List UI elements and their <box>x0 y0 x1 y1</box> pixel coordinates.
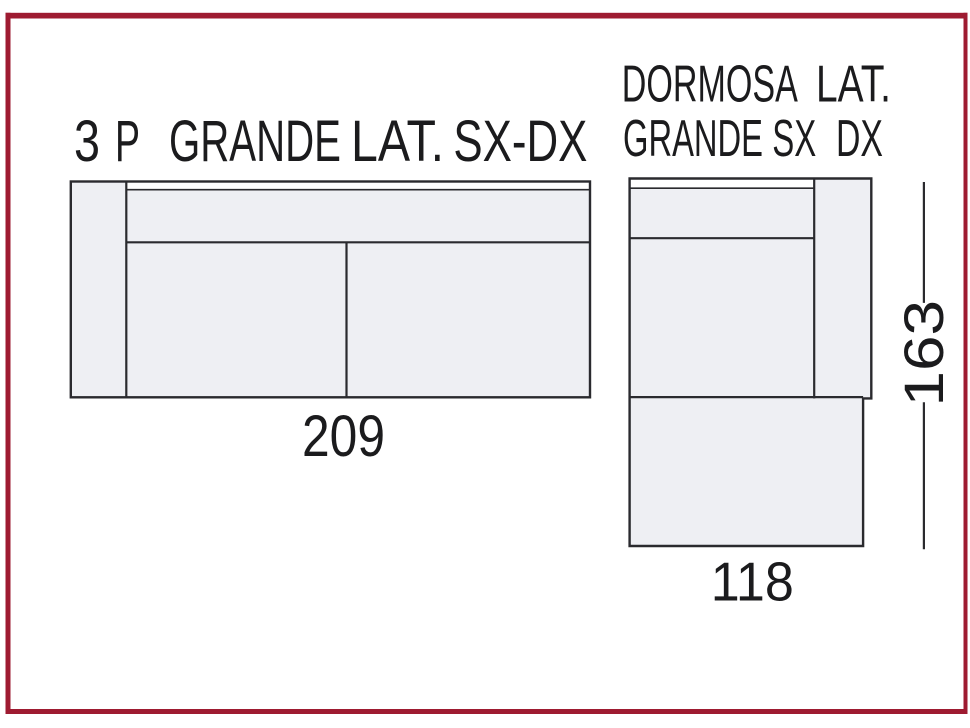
svg-text:GRANDE: GRANDE <box>169 109 341 174</box>
svg-text:118: 118 <box>711 551 794 613</box>
svg-text:SX: SX <box>772 109 816 167</box>
svg-text:163: 163 <box>892 300 955 407</box>
svg-text:LAT.: LAT. <box>351 109 444 174</box>
svg-text:SX-DX: SX-DX <box>453 109 587 174</box>
svg-text:DORMOSA: DORMOSA <box>622 55 798 113</box>
svg-text:3: 3 <box>74 109 100 174</box>
svg-text:DX: DX <box>836 109 883 167</box>
svg-text:P: P <box>115 109 140 174</box>
svg-text:209: 209 <box>302 404 385 469</box>
svg-text:LAT.: LAT. <box>816 55 891 113</box>
svg-text:GRANDE: GRANDE <box>623 109 763 167</box>
